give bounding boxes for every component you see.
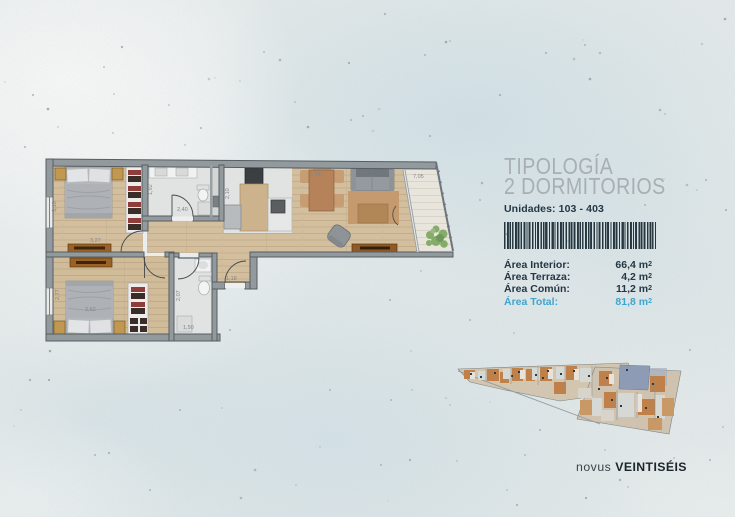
svg-text:2,40: 2,40: [177, 207, 188, 213]
svg-text:7,05: 7,05: [413, 174, 424, 180]
svg-text:1,92: 1,92: [148, 184, 154, 195]
svg-text:3,27: 3,27: [90, 238, 101, 244]
svg-text:2,62: 2,62: [85, 307, 96, 313]
svg-text:2,07: 2,07: [176, 290, 182, 301]
svg-text:3,10: 3,10: [52, 201, 58, 212]
svg-text:1,50: 1,50: [183, 325, 194, 331]
svg-text:2,77: 2,77: [55, 289, 61, 300]
svg-text:2,10: 2,10: [225, 188, 231, 199]
svg-text:1,48: 1,48: [310, 172, 321, 178]
svg-text:1,18: 1,18: [226, 276, 237, 282]
